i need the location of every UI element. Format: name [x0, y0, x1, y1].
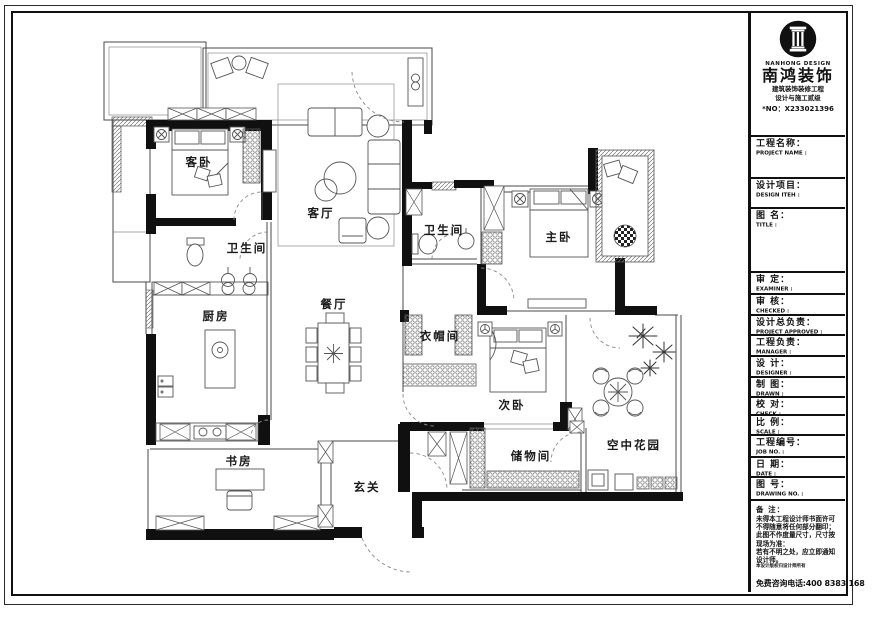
field-title: 图 名： TITLE :: [751, 207, 845, 271]
room-label-living-room: 客厅: [307, 206, 335, 220]
field-check: 校 对： CHECK :: [751, 396, 845, 414]
field-drawn: 制 图： DRAWN :: [751, 376, 845, 396]
room-label-foyer: 玄关: [354, 480, 381, 494]
notes-section: 备 注： 未得本工程设计师书面许可不得随意将任何部分翻印； 此图不作度量尺寸，尺…: [751, 499, 845, 592]
room-label-sky-garden: 空中花园: [607, 438, 661, 452]
room-label-storage: 储物间: [511, 449, 552, 463]
field-designer: 设 计： DESIGNER :: [751, 355, 845, 376]
field-date: 日 期： DATE :: [751, 456, 845, 476]
guest-wardrobe-icon: [243, 129, 260, 183]
room-label-guest-bedroom: 客卧: [185, 155, 213, 169]
drawing-sheet: 客卧 客厅 卫生间 卫生间 主卧 厨房 餐厅 衣帽间 次卧 书房 玄关 储物间 …: [0, 0, 895, 633]
notes-line-3: 若有不明之处，应立即通知设计师。: [756, 548, 841, 564]
company-cert-no: *NO：X233021396: [762, 104, 834, 114]
cloakroom-racks-icon: [403, 315, 476, 386]
room-label-bathroom-1: 卫生间: [227, 241, 268, 255]
room-label-study: 书房: [226, 454, 253, 468]
field-job-no: 工程编号： JOB NO. :: [751, 434, 845, 456]
garden-table-icon: [593, 368, 643, 416]
field-design-item: 设计项目： DESIGN ITEH :: [751, 177, 845, 207]
notes-label: 备 注：: [756, 504, 841, 515]
field-checked: 审 核： CHECKED :: [751, 293, 845, 314]
room-label-second-bedroom: 次卧: [499, 398, 526, 412]
field-project-approved: 设计总负责： PROJECT APPROVED :: [751, 314, 845, 334]
master-balcony-icon: [596, 150, 654, 262]
second-bed-icon: [478, 322, 562, 392]
field-manager: 工程负责： MANAGER :: [751, 334, 845, 355]
room-label-master-bedroom: 主卧: [546, 230, 573, 244]
title-block: NANHONG DESIGN 南鸿装饰 建筑装饰装修工程 设计与施工贰级 *NO…: [748, 13, 845, 592]
hotline-phone: 免费咨询电话:400 8383 168: [756, 578, 841, 589]
field-scale: 比 例： SCALE :: [751, 414, 845, 434]
company-name-cn: 南鸿装饰: [762, 67, 834, 85]
room-labels: 客卧 客厅 卫生间 卫生间 主卧 厨房 餐厅 衣帽间 次卧 书房 玄关 储物间 …: [185, 155, 662, 494]
company-cert-line2: 设计与施工贰级: [775, 94, 821, 102]
study-desk-icon: [216, 469, 264, 510]
field-project-name: 工程名称： PROJECT NAME :: [751, 135, 845, 177]
notes-line-1: 未得本工程设计师书面许可不得随意将任何部分翻印；: [756, 515, 841, 531]
dining-table-icon: [306, 313, 361, 393]
room-label-cloakroom: 衣帽间: [420, 329, 461, 343]
company-header: NANHONG DESIGN 南鸿装饰 建筑装饰装修工程 设计与施工贰级 *NO…: [751, 13, 845, 135]
room-label-kitchen: 厨房: [203, 309, 230, 323]
field-drawing-no: 图 号： DRAWING NO. :: [751, 476, 845, 499]
room-label-bathroom-2: 卫生间: [424, 223, 465, 237]
company-logo-icon: [778, 19, 818, 59]
field-examiner: 审 定： EXAMINER :: [751, 271, 845, 293]
living-sofa-icon: [263, 108, 400, 243]
balcony-deco-icon: [211, 56, 423, 106]
room-label-dining-room: 餐厅: [320, 297, 348, 311]
floor-plan: 客卧 客厅 卫生间 卫生间 主卧 厨房 餐厅 衣帽间 次卧 书房 玄关 储物间 …: [11, 11, 748, 594]
garden-appliances-icon: [588, 470, 677, 490]
kitchen-icon: [152, 282, 268, 441]
notes-line-4: 本设计版权归设计师所有: [756, 564, 841, 570]
notes-line-2: 此图不作度量尺寸，尺寸按现场为准：: [756, 531, 841, 547]
company-cert-line1: 建筑装饰装修工程: [772, 85, 824, 93]
